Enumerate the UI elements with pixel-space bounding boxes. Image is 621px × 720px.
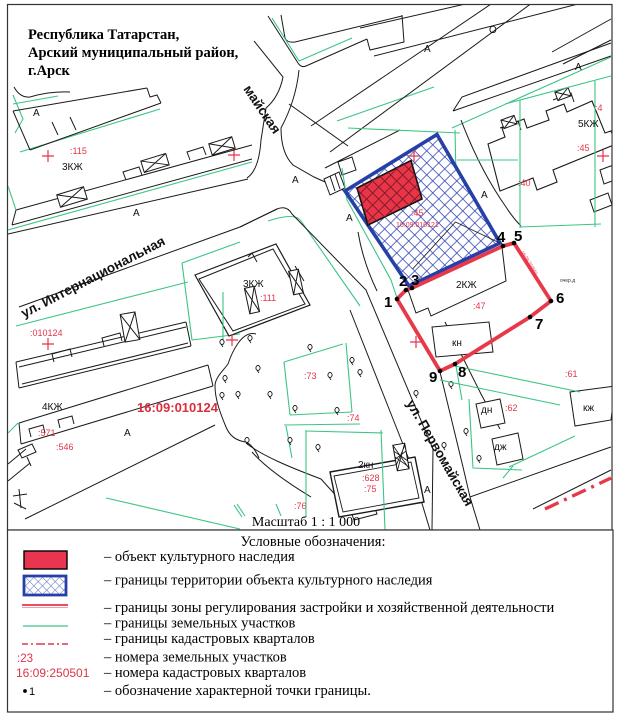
- svg-text:О: О: [489, 25, 497, 36]
- svg-text::115: :115: [70, 146, 87, 156]
- svg-text:1: 1: [29, 686, 35, 698]
- svg-text:Масштаб 1 : 1 000: Масштаб 1 : 1 000: [252, 515, 360, 530]
- svg-text:1: 1: [384, 294, 392, 311]
- svg-text:А: А: [124, 428, 131, 439]
- svg-text::010124: :010124: [30, 328, 63, 338]
- svg-text:– границы земельных участков: – границы земельных участков: [103, 616, 295, 632]
- svg-text:– номера земельных участков: – номера земельных участков: [103, 650, 287, 666]
- svg-text::628: :628: [362, 473, 380, 483]
- svg-text::45: :45: [411, 208, 424, 218]
- svg-text:– границы кадастровых квартало: – границы кадастровых кварталов: [103, 631, 315, 647]
- svg-text::75: :75: [364, 484, 377, 494]
- svg-text:А: А: [575, 62, 582, 73]
- svg-text:2кн: 2кн: [358, 460, 373, 471]
- svg-text::47: :47: [473, 301, 486, 311]
- svg-text:– границы зоны регулирования з: – границы зоны регулирования застройки и…: [103, 600, 554, 616]
- svg-text:– обозначение характерной точк: – обозначение характерной точки границы.: [103, 683, 371, 699]
- svg-text:16:09:010121: 16:09:010121: [396, 222, 439, 229]
- svg-text::62: :62: [505, 403, 518, 413]
- svg-text:16:09:010124: 16:09:010124: [137, 400, 219, 415]
- svg-text:6: 6: [556, 290, 564, 307]
- svg-text:2: 2: [399, 273, 407, 290]
- svg-text:А: А: [133, 208, 140, 219]
- svg-text:– границы территории объекта к: – границы территории объекта культурного…: [103, 573, 433, 589]
- svg-text::23: :23: [17, 653, 33, 665]
- svg-text::546: :546: [56, 442, 74, 452]
- svg-text:А: А: [424, 485, 431, 496]
- svg-text:3: 3: [411, 272, 419, 289]
- svg-text:2КЖ: 2КЖ: [456, 280, 477, 291]
- svg-text:А: А: [481, 190, 488, 201]
- svg-text:А: А: [292, 175, 299, 186]
- svg-text:9: 9: [429, 369, 437, 386]
- svg-text:– номера кадастровых кварталов: – номера кадастровых кварталов: [103, 665, 306, 681]
- svg-text:3КЖ: 3КЖ: [62, 162, 83, 173]
- svg-text:дж: дж: [494, 442, 507, 453]
- svg-text::571: :571: [38, 428, 56, 438]
- svg-text:очер.д: очер.д: [560, 278, 575, 284]
- svg-text::76: :76: [294, 501, 307, 511]
- svg-text:Республика Татарстан,: Республика Татарстан,: [28, 27, 180, 43]
- svg-text:г.Арск: г.Арск: [28, 63, 71, 79]
- svg-text::74: :74: [347, 413, 360, 423]
- svg-text:4КЖ: 4КЖ: [42, 402, 63, 413]
- svg-text::111: :111: [260, 293, 276, 303]
- svg-text:А: А: [33, 108, 40, 119]
- svg-text:Арский муниципальный район,: Арский муниципальный район,: [28, 45, 239, 61]
- svg-text:8: 8: [458, 364, 466, 381]
- svg-text::4: :4: [595, 103, 603, 113]
- svg-text:кн: кн: [452, 338, 462, 349]
- svg-text:– объект культурного наследия: – объект культурного наследия: [103, 549, 295, 565]
- svg-text:16:09:250501: 16:09:250501: [16, 666, 90, 680]
- svg-text::40: :40: [518, 178, 531, 188]
- svg-text::73: :73: [304, 371, 317, 381]
- svg-text:А: А: [346, 213, 353, 224]
- svg-text::45: :45: [577, 143, 590, 153]
- svg-text:Условные обозначения:: Условные обозначения:: [240, 534, 385, 550]
- svg-text:7: 7: [535, 316, 543, 333]
- svg-text::61: :61: [565, 369, 578, 379]
- svg-text:А: А: [424, 44, 431, 55]
- svg-text:4: 4: [497, 229, 506, 246]
- svg-text:дн: дн: [481, 405, 492, 416]
- svg-text:5КЖ: 5КЖ: [578, 119, 599, 130]
- svg-text:5: 5: [514, 228, 522, 245]
- svg-text:кж: кж: [583, 403, 594, 414]
